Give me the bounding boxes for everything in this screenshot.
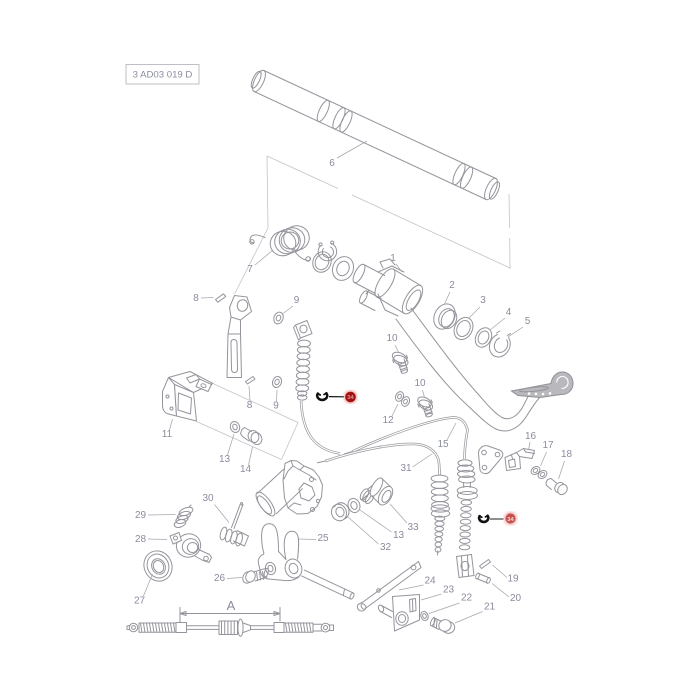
svg-text:10: 10 [386, 333, 398, 344]
svg-text:13: 13 [219, 454, 231, 465]
svg-text:10: 10 [414, 378, 426, 389]
svg-text:9: 9 [273, 401, 279, 412]
svg-text:9: 9 [294, 295, 300, 306]
svg-text:20: 20 [510, 593, 522, 604]
svg-text:11: 11 [162, 429, 173, 440]
svg-text:28: 28 [135, 534, 147, 545]
svg-text:23: 23 [443, 585, 455, 596]
svg-text:13: 13 [393, 530, 405, 541]
svg-text:30: 30 [202, 493, 214, 504]
svg-text:19: 19 [507, 574, 519, 585]
svg-text:1: 1 [390, 253, 396, 264]
svg-text:3: 3 [480, 295, 486, 306]
svg-text:6: 6 [329, 158, 335, 169]
svg-text:22: 22 [461, 593, 473, 604]
svg-text:21: 21 [484, 602, 496, 613]
svg-text:18: 18 [561, 449, 573, 460]
svg-text:16: 16 [525, 431, 537, 442]
svg-text:4: 4 [506, 307, 512, 318]
svg-text:3 AD03 019 D: 3 AD03 019 D [133, 70, 193, 81]
svg-text:14: 14 [240, 464, 252, 475]
svg-text:32: 32 [380, 542, 392, 553]
svg-text:2: 2 [449, 280, 455, 291]
svg-text:26: 26 [214, 573, 226, 584]
svg-text:17: 17 [542, 440, 554, 451]
svg-text:34: 34 [347, 395, 354, 401]
svg-text:29: 29 [135, 510, 147, 521]
svg-text:15: 15 [437, 439, 449, 450]
svg-text:34: 34 [507, 517, 514, 523]
svg-text:8: 8 [193, 293, 199, 304]
svg-text:27: 27 [134, 596, 146, 607]
svg-text:25: 25 [317, 533, 329, 544]
svg-text:12: 12 [382, 415, 394, 426]
svg-text:31: 31 [400, 463, 412, 474]
svg-text:33: 33 [407, 522, 419, 533]
svg-text:A: A [227, 598, 236, 613]
svg-text:7: 7 [247, 264, 253, 275]
svg-text:24: 24 [424, 576, 436, 587]
svg-text:5: 5 [525, 316, 531, 327]
